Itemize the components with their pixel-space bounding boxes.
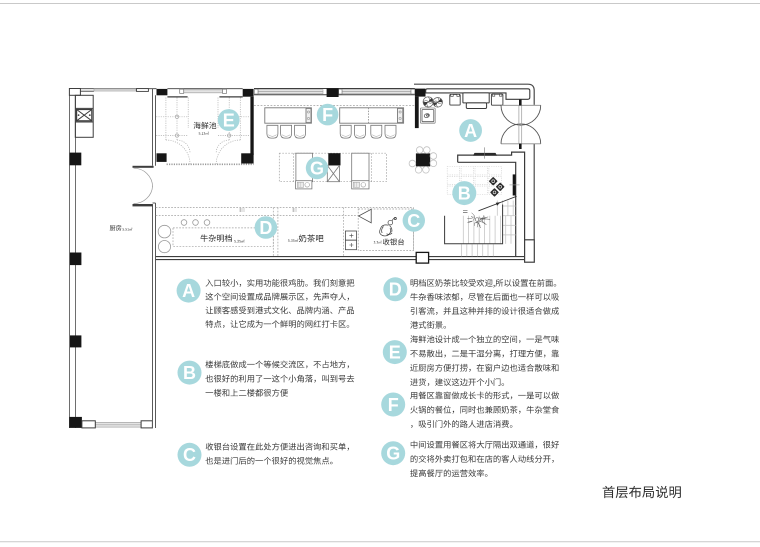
svg-text:A: A <box>464 121 477 141</box>
svg-text:F: F <box>322 105 333 125</box>
svg-text:G: G <box>310 158 324 178</box>
svg-text:B: B <box>458 184 471 204</box>
svg-text:C: C <box>407 211 420 231</box>
svg-text:D: D <box>389 280 402 300</box>
svg-text:D: D <box>259 218 272 238</box>
svg-text:C: C <box>183 445 196 465</box>
svg-text:E: E <box>389 343 401 363</box>
svg-text:A: A <box>182 281 195 301</box>
svg-text:B: B <box>183 363 196 383</box>
svg-text:F: F <box>388 395 399 415</box>
svg-text:E: E <box>223 110 235 130</box>
svg-text:G: G <box>386 444 400 464</box>
